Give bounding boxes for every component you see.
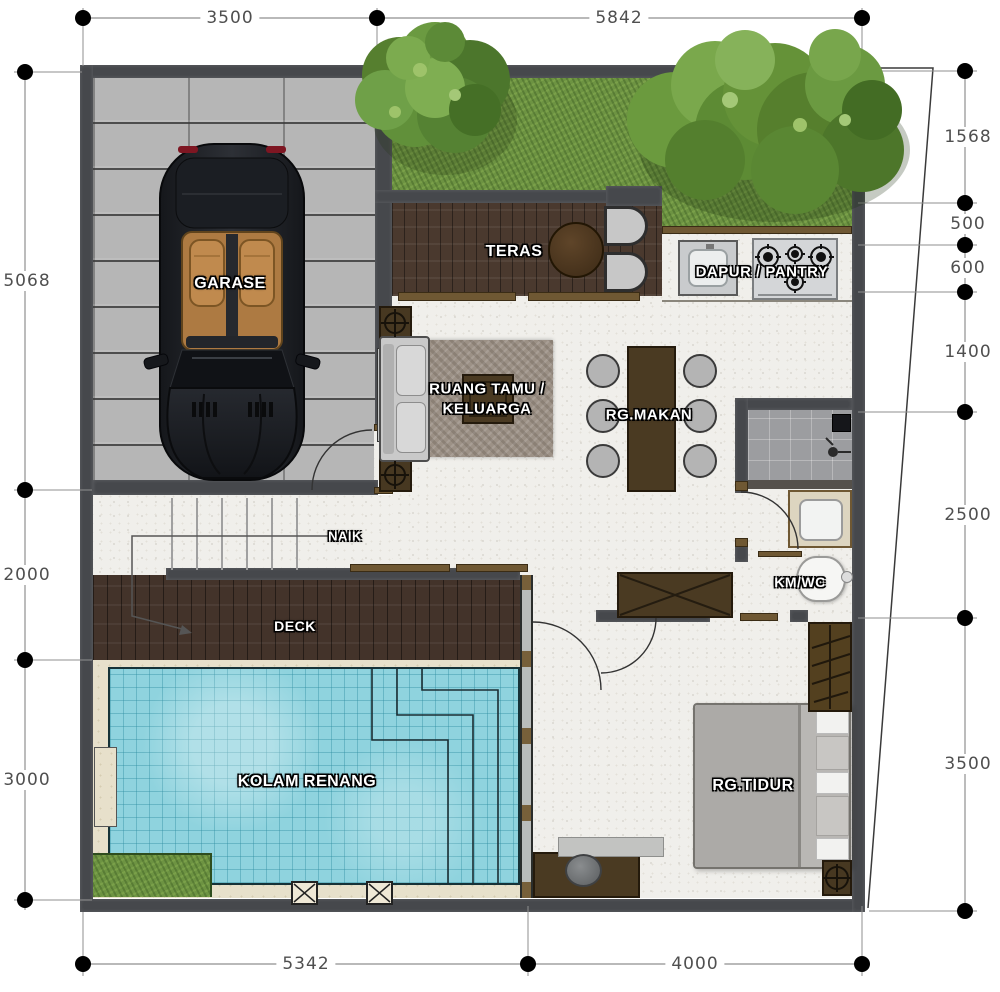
dim-right-6: 3500 [938,754,997,774]
toilet-flush-button [841,571,853,583]
shower-drain [832,414,851,432]
lawn-patch [93,853,212,897]
dim-top-1: 3500 [200,8,259,28]
label-deck: DECK [274,618,316,634]
dim-left-2: 2000 [0,565,57,585]
stool [565,854,602,887]
teras-door-sill-2 [528,292,640,301]
hall-mat [558,837,664,857]
deck-window-sill-2 [456,564,528,572]
deck-window-wall [520,575,533,898]
dim-right-2: 500 [944,214,991,234]
dim-bottom-2: 4000 [665,954,724,974]
wall-bottom [80,899,865,912]
kmwc-door-sill-top [735,481,748,491]
teras-door-sill-1 [398,292,516,301]
teras-chair [604,206,648,246]
deck-window-sill-1 [350,564,450,572]
wall-kmwc-west-stub [735,545,748,562]
sink-faucet [706,244,714,249]
dim-right-5: 2500 [938,505,997,525]
dim-bottom-1: 5342 [276,954,335,974]
kmwc-hall-sill [758,551,802,557]
dining-chair [683,444,717,478]
label-makan: RG.MAKAN [606,407,693,424]
label-tamu: RUANG TAMU / KELUARGA [407,380,567,419]
wall-shower-north [735,398,852,410]
wardrobe [808,622,852,712]
label-tidur: RG.TIDUR [712,777,793,795]
bathroom-sink-counter [788,490,852,548]
wall-teras-north [375,190,612,203]
teras-chair [604,252,648,292]
bedside-table [822,860,852,896]
wall-shower-south [748,480,852,489]
bedroom-door-sill [740,613,778,621]
wall-left [80,65,93,912]
bed-pillows [816,708,849,864]
label-dapur: DAPUR / PANTRY [696,264,829,281]
wall-shower-west [735,398,748,493]
sofa-back [383,344,394,454]
wall-top [80,65,865,78]
pool-column-marker [291,881,318,905]
label-naik: NAIK [328,529,362,544]
label-kmwc: KM/WC [774,574,826,590]
teras-table [548,222,604,278]
dining-chair [586,444,620,478]
bathroom-basin [799,499,843,541]
dim-left-3: 3000 [0,770,57,790]
car-top-view [142,136,322,488]
column-block [379,458,412,492]
site-boundary-line [865,68,933,908]
hall-cabinet [617,572,733,618]
dim-right-4: 1400 [938,342,997,362]
pool-column-marker [366,881,393,905]
planter-bench [94,747,117,827]
wall-bedroom-north-stub [790,610,808,622]
kmwc-door-sill-bottom [735,538,748,547]
label-garase: GARASE [194,275,265,293]
label-kolam: KOLAM RENANG [238,773,376,791]
wall-right [852,65,865,912]
dim-top-2: 5842 [589,8,648,28]
dining-chair [586,354,620,388]
floor-plan: 3500 5842 1568 500 600 1400 2500 3500 50… [0,0,1000,992]
dim-right-1: 1568 [938,127,997,147]
wall-teras-north-block [606,186,662,206]
label-teras: TERAS [486,243,543,261]
dim-left-1: 5068 [0,271,57,291]
kitchen-window-sill [662,226,852,234]
column-block [379,306,412,340]
dim-right-3: 600 [944,258,991,278]
dining-chair [683,354,717,388]
